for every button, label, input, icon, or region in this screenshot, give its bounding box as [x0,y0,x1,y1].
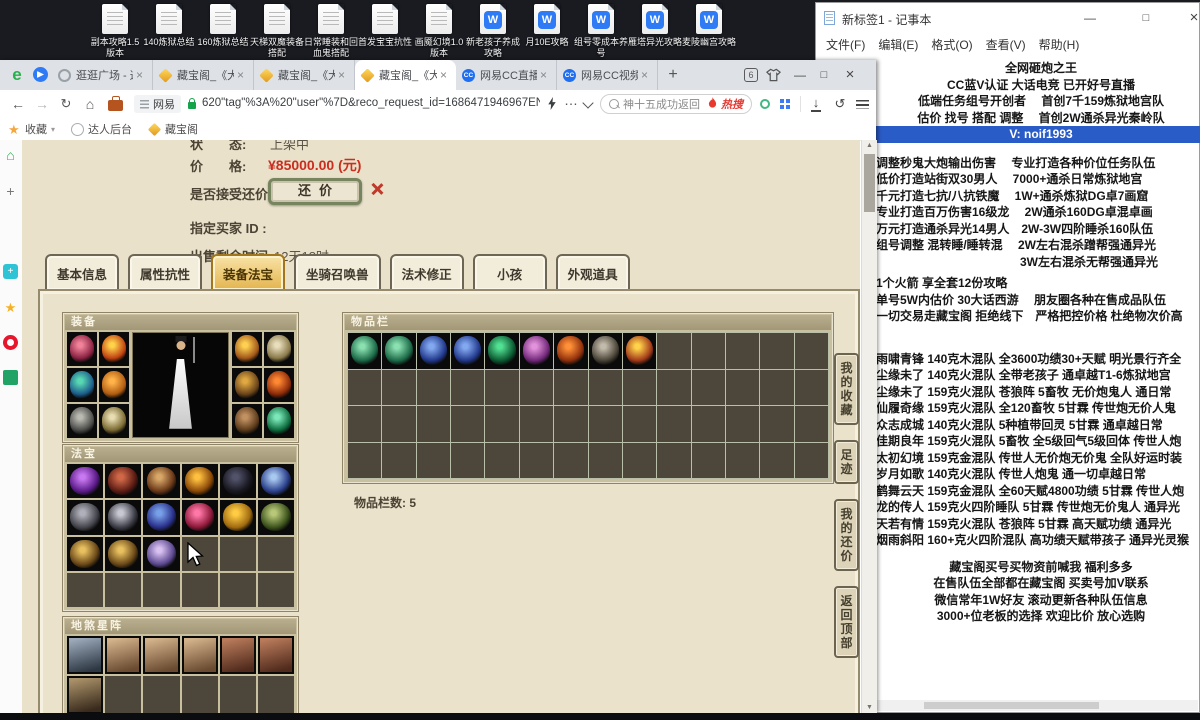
window-minimize-button[interactable]: — [788,60,812,90]
items-count: 物品栏数: 5 [354,494,416,511]
item-icon [185,467,215,495]
item-cell [182,676,218,713]
game-tab[interactable]: 小孩 [473,254,547,290]
item-cell [485,370,518,406]
item-cell[interactable] [264,404,294,438]
window-close-button[interactable]: × [838,60,862,90]
scrollbar-thumb[interactable] [924,702,1099,709]
scroll-up-icon[interactable]: ▲ [862,142,877,149]
item-icon [107,638,139,672]
notepad-line: 藏宝阁买号买物资前喊我 福利多多 [876,559,1200,576]
wps-badge-icon: W [484,11,502,29]
item-icon [454,336,481,365]
notepad-line: 岁月如歌 140克火混队 传世人炮鬼 通一切卓越日常 [876,466,1200,483]
item-cell[interactable] [182,636,218,674]
item-cell [623,443,656,479]
home-button[interactable]: ⌂ [80,94,100,114]
browser-tab[interactable]: 逛逛广场 - 这× [52,60,153,90]
bargain-label: 是否接受还价: [190,184,272,203]
item-cell [692,333,725,369]
item-cell [589,443,622,479]
item-cell[interactable] [143,464,179,498]
item-cell[interactable] [67,676,103,713]
notepad-close-button[interactable]: × [1174,3,1200,33]
globe-icon [71,123,84,136]
fabao-grid [67,464,294,607]
notepad-line: 尘缘未了 159克火混队 苍狼阵 5畜牧 无价炮鬼人 通日常 [876,384,1200,401]
notepad-line: CC蓝V认证 大话电竞 已开好号直播 [876,77,1200,94]
notepad-line: 调整秒鬼大炮输出伤害 专业打造各种价位任务队伍 [876,155,1200,172]
desktop-icon-label: 新老孩子养成攻略 [466,37,520,59]
item-icon [185,503,215,531]
item-cell[interactable] [485,333,518,369]
game-tabs: 基本信息属性抗性装备法宝坐骑召唤兽法术修正小孩外观道具 [45,254,630,290]
bookmark-label: 藏宝阁 [165,121,198,137]
lock-icon[interactable] [188,102,196,109]
notepad-line: 佳期良年 159克火混队 5畜牧 全5级回气5级回体 传世人炮 [876,433,1200,450]
item-cell [182,537,218,571]
item-icon [108,503,138,531]
item-cell [417,406,450,442]
equip-panel-header: 装备 [65,315,296,330]
desktop-icon-label: 月10E攻略 [520,37,574,48]
equip-grid-left [67,332,129,438]
item-icon [147,503,177,531]
notepad-title: 新标签1 - 记事本 [842,11,931,28]
item-cell [657,333,690,369]
item-icon [260,638,292,672]
text-doc-icon [264,4,290,34]
doc-lines-icon [269,12,285,27]
item-icon [70,335,95,363]
notepad-line: 天若有情 159克火混队 苍狼阵 5甘霖 高天赋功绩 通异光 [876,516,1200,533]
item-cell[interactable] [99,368,129,402]
reload-button[interactable]: ↻ [56,94,76,114]
desktop-icon-label: 140炼狱总结 [142,37,196,48]
hot-flame-icon [708,95,717,113]
desktop-icon-label: 组号零成本养号 [574,37,628,59]
browser-tab[interactable]: 藏宝阁_《大话× [254,60,355,90]
item-cell[interactable] [520,333,553,369]
desktop-icon[interactable]: 画魇幻境1.0 版本 [412,4,466,59]
cc-icon: CC [462,69,475,82]
item-cell [258,573,294,607]
tab-title: 藏宝阁_《大话 [278,67,335,83]
detail-panel: 装备 法宝 [38,289,860,713]
item-cell [692,443,725,479]
item-cell[interactable] [105,636,141,674]
tab-close-icon[interactable]: × [133,68,146,82]
notepad-line: 众志成城 140克火混队 5种植带回灵 5甘霖 通卓越日常 [876,417,1200,434]
item-cell[interactable] [143,500,179,534]
desktop-icon[interactable]: 日常睡装和回血鬼搭配 [304,4,358,59]
notepad-line [876,325,1200,351]
item-cell [657,370,690,406]
bookmarks-list: 收藏▾达人后台藏宝阁 [8,121,214,137]
notepad-line: 组号调整 混转睡/睡转混 2W左右混杀蹭帮强通异光 [876,237,1200,254]
item-cell [258,676,294,713]
reject-stamp-icon [370,182,384,196]
item-cell[interactable] [258,500,294,534]
plus-icon[interactable]: + [3,184,18,199]
notepad-line: 千元打造七抗/八抗铁魔 1W+通杀炼狱DG卓7画窟 [876,188,1200,205]
side-nav-char: 的 [840,521,852,535]
side-nav-button[interactable]: 返回顶部 [834,586,859,658]
disha-panel-header: 地煞星阵 [65,619,296,634]
side-nav-button[interactable]: 我的收藏 [834,353,859,425]
browser-tab[interactable]: 藏宝阁_《大话× [153,60,254,90]
theme-shirt-icon[interactable] [766,68,781,82]
tab-close-icon[interactable]: × [638,68,651,82]
status-label: 状 态: [190,140,246,153]
item-cell[interactable] [348,333,381,369]
desktop-icon[interactable]: 副本攻略1.5 版本 [88,4,142,59]
desktop-icon-label: 天梯双魔装备搭配 [250,37,304,59]
history-icon[interactable]: ↺ [832,94,848,114]
gem-icon [360,68,374,82]
price-value: ¥85000.00 (元) [268,155,361,175]
item-cell [451,370,484,406]
item-cell [67,573,103,607]
apps-grid-icon[interactable] [780,99,784,103]
url-text[interactable]: 620"tag"%3A%20"user"%7D&reco_request_id=… [202,97,540,113]
notepad-line [876,143,1200,155]
reader-badge[interactable]: 网易 [134,95,181,113]
notepad-menu-item[interactable]: 格式(O) [931,36,972,53]
desktop-icon-label: 日常睡装和回血鬼搭配 [304,37,358,59]
item-cell [760,370,793,406]
item-icon [420,336,447,365]
side-nav-char: 还 [840,535,852,549]
item-cell [657,406,690,442]
desktop-icon[interactable]: W月10E攻略 [520,4,574,59]
price-label: 价 格: [190,156,246,175]
game-tab[interactable]: 法术修正 [390,254,464,290]
scrollbar-thumb[interactable] [864,154,875,212]
item-icon [108,540,138,568]
item-icon [70,371,95,399]
caret-down-icon: ▾ [51,125,55,134]
item-cell [143,573,179,607]
side-nav-char: 价 [840,549,852,563]
notepad-menu-item[interactable]: 编辑(E) [878,36,918,53]
notepad-maximize-button[interactable]: □ [1126,3,1166,33]
item-cell[interactable] [258,636,294,674]
item-cell [520,370,553,406]
wps-badge-icon: W [592,11,610,29]
notepad-line: 龙的传人 159克火四阶睡队 5甘霖 传世炮无价鬼人 通异光 [876,499,1200,516]
item-cell [382,443,415,479]
item-cell[interactable] [417,333,450,369]
item-cell [554,443,587,479]
taskbar-strip[interactable] [0,713,1200,720]
item-cell [760,406,793,442]
desktop-icon[interactable]: 首发宝宝抗性 [358,4,412,59]
browser-tab-strip: e 逛逛广场 - 这×藏宝阁_《大话×藏宝阁_《大话×藏宝阁_《大话×CC网易C… [0,60,876,90]
item-cell[interactable] [220,500,256,534]
item-cell[interactable] [232,368,262,402]
notepad-line: 微信常年1W好友 滚动更新各种队伍信息 [876,592,1200,609]
side-nav-button[interactable]: 足迹 [834,440,859,484]
notepad-line: 万元打造通杀异光14男人 2W-3W四阶睡杀160队伍 [876,221,1200,238]
tab-title: 藏宝阁_《大话 [177,67,234,83]
item-cell[interactable] [67,332,97,366]
item-icon [70,503,100,531]
item-cell[interactable] [264,332,294,366]
item-cell[interactable] [220,636,256,674]
item-cell [105,573,141,607]
wps-badge-icon: W [700,11,718,29]
item-cell [623,370,656,406]
gem-icon [259,68,273,82]
item-icon [147,467,177,495]
wps-doc-icon: W [588,4,614,34]
item-cell [726,443,759,479]
browser-window: e 逛逛广场 - 这×藏宝阁_《大话×藏宝阁_《大话×藏宝阁_《大话×CC网易C… [0,60,876,713]
note-icon[interactable] [3,370,18,385]
blue-badge-icon[interactable] [33,67,48,82]
item-cell[interactable] [105,464,141,498]
scroll-down-icon[interactable]: ▼ [862,704,877,711]
desktop-icon[interactable]: 140炼狱总结 [142,4,196,59]
tab-close-icon[interactable]: × [335,68,348,82]
divider [800,96,801,112]
notepad-icon [824,11,835,25]
notepad-line: 3W左右混杀无帮强通异光 [876,254,1200,271]
item-cell[interactable] [258,464,294,498]
tab-title: 藏宝阁_《大话 [379,67,437,83]
notepad-line: 低价打造站街双30男人 7000+通杀日常炼狱地宫 [876,171,1200,188]
home-icon[interactable]: ⌂ [3,148,18,163]
side-nav-button[interactable]: 我的还价 [834,499,859,571]
tab-close-icon[interactable]: × [437,68,450,82]
text-doc-icon [156,4,182,34]
bookmarks-bar: 收藏▾达人后台藏宝阁 [0,118,876,141]
notepad-content[interactable]: 全网砸炮之王CC蓝V认证 大话电竞 已开好号直播低端任务组号开创者 首创7千15… [876,60,1200,696]
bookmark-item[interactable]: 达人后台 [71,121,132,137]
more-icon[interactable]: … [564,92,579,108]
notepad-line: V: noif1993 [876,126,1200,143]
notepad-line: 一切交易走藏宝阁 拒绝线下 严格把控价格 杜绝物次价高 [876,308,1200,325]
item-icon [592,336,619,365]
doc-lines-icon [323,12,339,27]
reader-badge-label: 网易 [153,96,175,112]
notepad-line: 单号5W内估价 30大话西游 朋友圈各种在售成品队伍 [876,292,1200,309]
item-icon [557,336,584,365]
weibo-icon[interactable] [3,335,18,350]
item-icon [69,678,101,712]
item-cell[interactable] [67,368,97,402]
doc-lines-icon [161,12,177,27]
side-nav-char: 返 [840,594,852,608]
item-cell [795,406,828,442]
item-cell[interactable] [67,464,103,498]
item-cell[interactable] [220,464,256,498]
notepad-menu-item[interactable]: 文件(F) [826,36,865,53]
notepad-menu-item[interactable]: 查看(V) [986,36,1026,53]
address-bar: ← → ↻ ⌂ 网易 620"tag"%3A%20"user"%7D&reco_… [0,90,876,119]
disha-grid [67,636,294,713]
desktop-icon[interactable]: 160炼狱总结 [196,4,250,59]
item-cell [451,406,484,442]
item-cell[interactable] [99,332,129,366]
fabao-panel-header: 法宝 [65,447,296,462]
item-cell[interactable] [67,636,103,674]
menu-icon[interactable] [856,100,869,109]
fabao-panel: 法宝 [62,444,299,612]
forward-button[interactable]: → [32,94,52,114]
browser-side-toolbar: ⌂ + + ★ [0,140,23,713]
item-cell [520,443,553,479]
side-nav-char: 我 [840,361,852,375]
browser-tab[interactable]: CC网易CC直播× [456,60,557,90]
green-dot-icon[interactable] [760,99,770,109]
search-text: 神十五成功返回 [623,96,704,112]
item-cell[interactable] [182,500,218,534]
item-icon [147,540,177,568]
desktop-icon[interactable]: W新老孩子养成攻略 [466,4,520,59]
disha-panel: 地煞星阵 [62,616,299,713]
item-cell[interactable] [67,404,97,438]
items-panel-header: 物品栏 [345,315,831,330]
item-icon [102,371,127,399]
item-cell [795,370,828,406]
doc-lines-icon [107,12,123,27]
staff-icon [193,337,195,363]
tab-close-icon[interactable]: × [537,68,550,82]
item-cell [485,443,518,479]
cc-icon: CC [563,69,576,82]
wps-badge-icon: W [646,11,664,29]
item-cell[interactable] [554,333,587,369]
text-doc-icon [318,4,344,34]
item-icon [145,638,177,672]
notepad-line: 鹤舞云天 159克金混队 全60天赋4800功绩 5甘霖 传世人炮 [876,483,1200,500]
gem-icon [148,122,161,135]
notepad-line: 烟雨斜阳 160+克火四阶混队 高功绩天赋带孩子 通异光灵猴 [876,532,1200,549]
item-cell[interactable] [451,333,484,369]
item-cell[interactable] [182,464,218,498]
item-cell [520,406,553,442]
tab-close-icon[interactable]: × [234,68,247,82]
item-cell[interactable] [143,537,179,571]
item-cell[interactable] [264,368,294,402]
tab-title: 网易CC直播 [480,67,537,83]
page-count-badge[interactable]: 6 [744,68,758,82]
item-icon [235,371,260,399]
back-button[interactable]: ← [8,94,28,114]
game-tab[interactable]: 外观道具 [556,254,630,290]
desktop-icon[interactable]: W组号零成本养号 [574,4,628,59]
character-portrait [132,332,229,438]
side-nav-char: 我 [840,507,852,521]
side-nav-char: 藏 [840,403,852,417]
desktop-icon[interactable]: W麦陵幽宫攻略 [682,4,736,59]
item-cell[interactable] [143,636,179,674]
notepad-line: 专业打造百万伤害16级龙 2W通杀160DG卓混卓画 [876,204,1200,221]
bookmark-item[interactable]: 藏宝阁 [148,121,198,137]
desktop-icon[interactable]: W雁塔异光攻略 [628,4,682,59]
bargain-button[interactable]: 还价 [268,178,362,205]
item-icon [267,335,292,363]
browser-tab[interactable]: CC网易CC视频_× [557,60,658,90]
item-cell [795,333,828,369]
browser-logo-icon[interactable]: e [7,65,27,85]
item-icon [626,336,653,365]
item-icon [385,336,412,365]
side-nav-char: 的 [840,375,852,389]
browser-tab[interactable]: 藏宝阁_《大话× [355,60,456,90]
wps-doc-icon: W [696,4,722,34]
item-cell [348,406,381,442]
desktop-icons: 副本攻略1.5 版本140炼狱总结160炼狱总结天梯双魔装备搭配日常睡装和回血鬼… [88,4,736,59]
briefcase-icon[interactable] [108,100,123,111]
item-cell[interactable] [99,404,129,438]
page-scrollbar[interactable]: ▲ ▼ [861,140,877,713]
reader-lines-icon [140,100,149,109]
item-icon [70,407,95,435]
item-cell[interactable] [67,537,103,571]
game-tab[interactable]: 属性抗性 [128,254,202,290]
items-panel: 物品栏 [342,312,834,484]
app-icon-teal[interactable]: + [3,264,18,279]
lightning-icon[interactable] [548,97,556,115]
hot-label[interactable]: 热搜 [721,96,743,112]
item-cell[interactable] [232,404,262,438]
notepad-menu-item[interactable]: 帮助(H) [1039,36,1080,53]
notepad-line: 太初幻境 159克金混队 传世人无价炮无价鬼 全队好运时装 [876,450,1200,467]
item-cell[interactable] [232,332,262,366]
item-cell[interactable] [67,500,103,534]
item-cell [348,443,381,479]
new-tab-button[interactable]: + [662,64,684,86]
game-page: 状 态: 上架中 价 格: ¥85000.00 (元) 是否接受还价: 还价 指… [22,140,860,713]
equip-grid-right [232,332,294,438]
globe-icon [58,69,71,82]
item-icon [108,467,138,495]
item-cell[interactable] [589,333,622,369]
items-grid [347,332,829,479]
item-cell [692,406,725,442]
download-icon[interactable]: ↓ [808,94,824,114]
bookmark-item[interactable]: 收藏▾ [8,121,55,137]
item-cell[interactable] [382,333,415,369]
item-icon [223,503,253,531]
desktop-icon-label: 雁塔异光攻略 [628,37,682,48]
item-cell[interactable] [623,333,656,369]
game-tab[interactable]: 基本信息 [45,254,119,290]
item-cell[interactable] [105,537,141,571]
item-cell [382,370,415,406]
item-cell[interactable] [105,500,141,534]
item-cell [554,370,587,406]
selected-text: V: noif1993 [876,126,1200,143]
notepad-line: 在售队伍全部都在藏宝阁 买卖号加V联系 [876,575,1200,592]
window-maximize-button[interactable]: □ [812,60,836,90]
search-box[interactable]: 神十五成功返回 热搜 [600,94,752,114]
notepad-minimize-button[interactable]: — [1070,3,1110,33]
desktop-icon[interactable]: 天梯双魔装备搭配 [250,4,304,59]
star-icon[interactable]: ★ [3,300,18,315]
game-tab[interactable]: 装备法宝 [211,254,285,290]
chevron-down-icon[interactable] [582,97,593,108]
desktop-icon-label: 画魇幻境1.0 版本 [412,37,466,59]
item-cell [485,406,518,442]
side-nav-char: 迹 [840,462,852,476]
side-nav: 我的收藏足迹我的还价返回顶部 [834,353,859,673]
notepad-line: 3000+位老板的选择 欢迎比价 放心选购 [876,608,1200,625]
game-tab[interactable]: 坐骑召唤兽 [294,254,381,290]
